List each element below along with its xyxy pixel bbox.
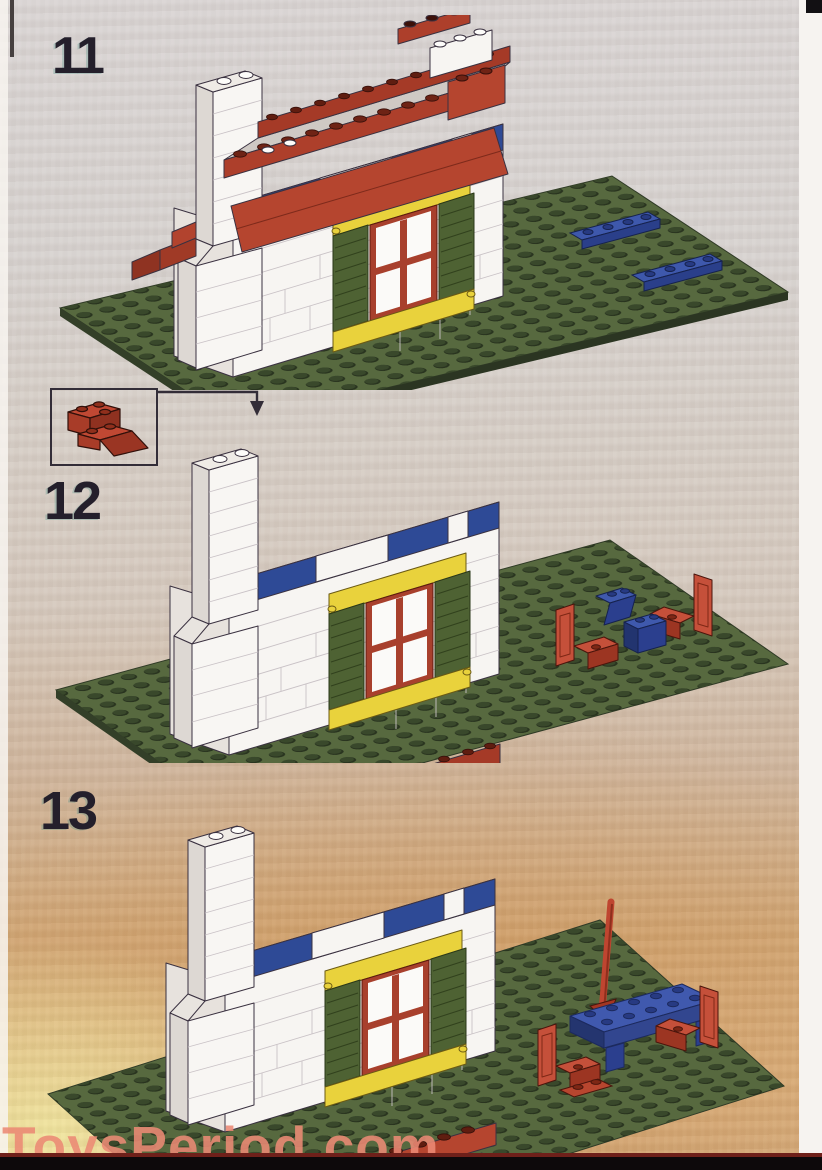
scan-line-artifact	[10, 0, 14, 57]
bottom-black-bar	[0, 1157, 822, 1170]
scan-corner-mark	[806, 0, 822, 13]
callout-bricks	[52, 390, 156, 464]
red-2x2-inverted-slope-brick-icon	[78, 424, 148, 456]
step-11-number: 11	[52, 30, 103, 82]
step-13-illustration	[20, 762, 802, 1156]
step-12-callout-box	[50, 388, 158, 466]
scan-edge-right	[799, 0, 822, 1170]
instruction-page: 11	[0, 0, 822, 1170]
step-11-illustration	[40, 15, 800, 390]
step-12-number: 12	[44, 474, 100, 528]
callout-arrow	[158, 392, 264, 416]
scan-edge-left	[0, 0, 8, 1156]
step-13-number: 13	[40, 784, 96, 838]
